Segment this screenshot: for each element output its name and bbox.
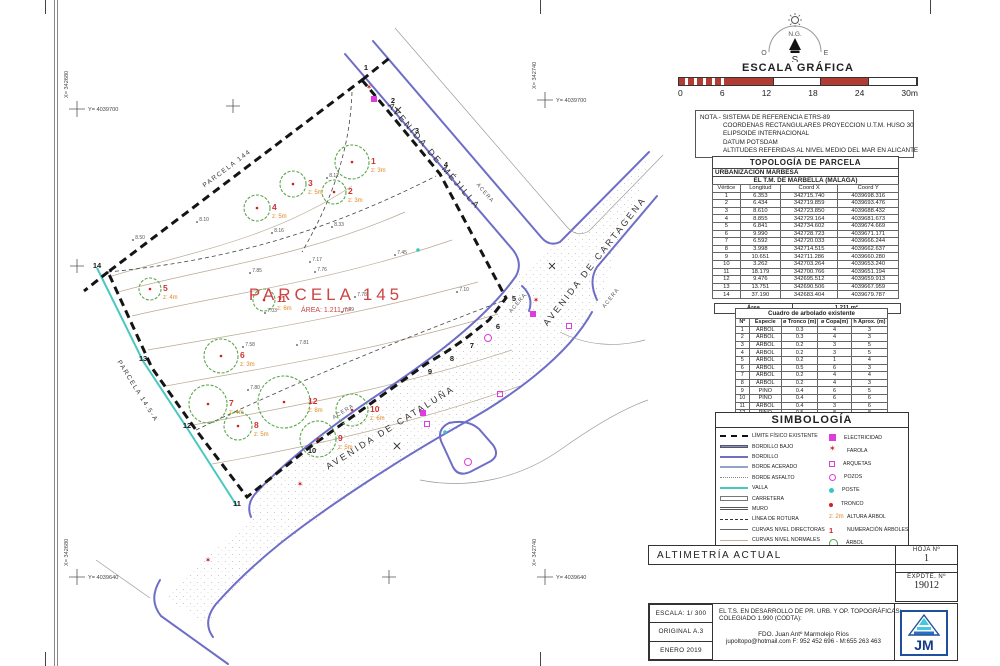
tree-height-label: z: 3m [240,362,255,368]
sheet-number-cell: HOJA Nº 1 [895,545,958,573]
table-row: 11 18.179 342700.766 4039651.194 [713,268,899,276]
vertex-number: 1 [364,63,368,72]
svg-text:Y= 4039640: Y= 4039640 [88,575,118,581]
tree-height-label: z: 5m [272,214,287,220]
legend-symbol [720,435,748,437]
tree-number: 5 [163,283,168,293]
legend-symbol [720,540,748,541]
legend-item: BORDE ACERADO [720,462,824,472]
grid-cross-label: Y= 4039640 X= 342680 [64,539,118,585]
scale-ticks: 0 6 12 18 24 30m [678,88,918,98]
tree-height-label: z: 3m [348,198,363,204]
legend-item: TRONCO [824,497,908,510]
date-cell: ENERO 2019 [649,641,713,660]
table-row: 10 3.262 342703.264 4039653.240 [713,260,899,268]
tree: 4 z: 5m [244,195,287,221]
grid-cross-label: Y= 4039700 X= 342680 [64,71,118,117]
legend-item: BORDILLO [720,452,824,462]
spot-elevation: 8.16 [271,228,284,234]
legend-right-column: ELECTRICIDAD FAROLA ARQUETAS POZOS POSTE… [824,431,908,556]
legend-item: ARQUETAS [824,457,908,470]
tree: 3 z: 5m [280,171,323,197]
survey-sheet: { "compass": {"north_label":"N.G.","west… [0,0,1000,666]
legend-item: z: 2m ALTURA ÁRBOL [824,510,908,523]
vertex-number: 9 [428,367,432,376]
plan-label: AVENIDA DE MÉJILLA [386,101,483,212]
table-row: 5 ÁRBOL 0.2 1 4 [736,356,888,364]
tree: 5 z: 4m [139,278,178,301]
table-row: 3 ÁRBOL 0.2 3 5 [736,341,888,349]
legend-title: SIMBOLOGÍA [716,413,908,428]
vertex-number: 8 [450,354,454,363]
spot-elevation: 8.50 [132,235,145,241]
compass-rose: N.G. O E S [758,8,832,64]
legend-symbol [720,507,748,510]
file-number-cell: EXPDTE. Nº 19012 [895,572,958,602]
electricidad-icon [530,311,536,317]
tree-height-label: z: 6m [277,306,292,312]
electricidad-icon [371,96,377,102]
table-row: 5 6.841 342734.602 4039674.669 [713,222,899,230]
jm-logo-icon: JM [902,612,946,654]
legend-symbol [829,461,835,467]
legend-symbol [720,456,748,459]
svg-text:8.16: 8.16 [274,228,284,234]
grid-cross [70,259,84,273]
table-row: 3 8.610 342723.850 4039688.432 [713,207,899,215]
table-row: 2 6.434 342719.859 4039693.476 [713,200,899,208]
farola-icon: ✶ [205,556,211,565]
tree-height-label: z: 5m [308,190,323,196]
farola-icon: ✶ [297,480,303,489]
table-row: 8 ÁRBOL 0.2 4 3 [736,379,888,387]
plan-label: PARCELA 14.5-A [115,359,159,423]
svg-text:N.G.: N.G. [788,31,802,38]
svg-text:E: E [824,50,829,57]
legend-item: LÍMITE FÍSICO EXISTENTE [720,431,824,441]
legend-symbol [720,529,748,530]
grid-crosses [70,99,396,584]
legend: SIMBOLOGÍA LÍMITE FÍSICO EXISTENTE BORDI… [715,412,909,555]
tree-number: 4 [272,202,277,212]
svg-text:Y= 4039700: Y= 4039700 [88,107,118,113]
spot-elevation: 7.80 [247,385,260,391]
tree: 1 z: 3m [335,145,386,179]
table-row: 9 10.651 342711.286 4039660.280 [713,253,899,261]
tree-number: 12 [308,396,318,406]
table-row: 12 9.476 342695.512 4039659.913 [713,276,899,284]
legend-left-column: LÍMITE FÍSICO EXISTENTE BORDILLO BAJO BO… [720,431,824,556]
table-row: 9 PINO 0.4 6 5 [736,387,888,395]
tree-trunk-dot [149,288,152,291]
svg-text:Y= 4039700: Y= 4039700 [556,98,586,104]
tree-number: 1 [371,156,376,166]
legend-symbol [829,488,834,493]
tree-number: 10 [370,404,380,414]
vertex-number: 7 [470,341,474,350]
pozo-icon [465,459,472,466]
tree-number: 7 [229,398,234,408]
spot-elevation: 7.10 [456,287,469,293]
spot-elevation: 7.85 [249,268,262,274]
tree-trunk-dot [237,425,240,428]
table-row: 8 3.998 342714.515 4039662.637 [713,245,899,253]
svg-text:✶: ✶ [205,556,211,565]
legend-symbol [720,477,748,478]
legend-symbol [720,445,748,448]
table-row: 4 ÁRBOL 0.2 3 5 [736,349,888,357]
parcel-area-label: ÁREA: 1.211 m² [301,305,352,314]
vertex-number: 12 [183,421,191,430]
grid-cross [382,570,396,584]
title-block: HOJA Nº 1 EXPDTE. Nº 19012 ALTIMETRÍA AC… [648,545,958,661]
svg-text:X= 342680: X= 342680 [64,71,70,98]
legend-item: ELECTRICIDAD [824,431,908,444]
table-row: 7 6.592 342720.033 4039666.244 [713,238,899,246]
poste-icon [416,248,420,252]
svg-text:X= 342680: X= 342680 [64,539,70,566]
table-row: 4 8.855 342729.164 4039681.673 [713,215,899,223]
svg-text:X= 342740: X= 342740 [532,62,538,89]
svg-text:7.17: 7.17 [312,257,322,263]
svg-text:X= 342740: X= 342740 [532,539,538,566]
legend-item: CARRETERA [720,493,824,503]
spot-elevation: 7.17 [309,257,322,263]
tree-number: 6 [240,350,245,360]
svg-text:7.80: 7.80 [250,385,260,391]
road-surface [165,158,650,628]
legend-item: CURVAS NIVEL DIRECTORAS [720,525,824,535]
svg-text:8.50: 8.50 [135,235,145,241]
legend-item: BORDILLO BAJO [720,441,824,451]
svg-text:8.33: 8.33 [334,222,344,228]
svg-text:7.45: 7.45 [397,250,407,256]
legend-item: FAROLA [824,444,908,457]
poste-icon [443,430,447,434]
spot-elevations: 7.85 7.76 7.03 7.59 7.78 8.12 8.33 8.16 … [132,173,469,391]
tree-trunk-dot [351,161,354,164]
table-row: 1 6.353 342715.740 4039698.316 [713,192,899,200]
svg-text:7.03: 7.03 [267,308,277,314]
tree-trunk-dot [220,355,223,358]
vertex-number: 10 [308,446,316,455]
svg-text:✶: ✶ [533,296,539,305]
legend-item: POZOS [824,471,908,484]
plan-label: ACERA [601,287,620,310]
svg-text:JM: JM [914,637,933,653]
tree-number: 2 [348,186,353,196]
svg-text:7.81: 7.81 [299,340,309,346]
spot-elevation: 7.81 [296,340,309,346]
legend-item: CURVAS NIVEL NORMALES [720,535,824,545]
tree-height-label: z: 6m [370,416,385,422]
spot-elevation: 8.12 [326,173,339,179]
svg-text:7.10: 7.10 [459,287,469,293]
tree-height-label: z: 4m [163,295,178,301]
spot-elevation: 7.58 [242,342,255,348]
legend-symbol [720,487,748,489]
vertex-number: 6 [496,322,500,331]
graphic-scale: ESCALA GRÁFICA 0 6 12 18 24 30m [678,62,918,98]
grid-cross-label: Y= 4039640 X= 342740 [532,539,586,585]
parcel-title: PARCELA 145 [249,285,403,304]
legend-item: LÍNEA DE ROTURA [720,514,824,524]
topology-title: TOPOLOGÍA DE PARCELA [712,156,899,168]
trees-table: Cuadro de arbolado existente Nº Especie … [735,308,888,418]
tree-height-label: z: 8m [308,408,323,414]
svg-text:8.10: 8.10 [199,217,209,223]
tree: 12 z: 8m [258,376,323,428]
legend-symbol [829,474,836,481]
tree-number: 9 [338,433,343,443]
table-row: 6 ÁRBOL 0.5 6 3 [736,364,888,372]
spot-elevation: 7.45 [394,250,407,256]
legend-symbol [720,496,748,501]
legend-symbol [829,434,836,441]
table-row: 1 ÁRBOL 0.3 4 3 [736,326,888,334]
legend-symbol [829,503,833,507]
tree-number: 8 [254,420,259,430]
reference-note: NOTA.- SISTEMA DE REFERENCIA ETRS-89 COO… [695,110,914,158]
surveyor-info: EL T.S. EN DESARROLLO DE PR. URB. Y OP. … [713,604,895,660]
table-row: 11 ÁRBOL 0.4 3 6 [736,402,888,410]
legend-symbol [720,519,748,520]
tree-trunk-dot [283,401,286,404]
svg-text:O: O [761,50,767,57]
trees-table-title: Cuadro de arbolado existente [735,308,888,318]
table-row: 2 ÁRBOL 0.3 4 3 [736,334,888,342]
legend-item: 1 NUMERACIÓN ÁRBOLES [824,523,908,536]
svg-text:7.76: 7.76 [317,267,327,273]
legend-item: VALLA [720,483,824,493]
tree-trunk-dot [256,207,259,210]
tree-height-label: z: 5m [254,432,269,438]
grid-cross [226,99,240,113]
scale-bar [678,77,918,86]
tree-trunk-dot [292,183,295,186]
scale-cell: ESCALA: 1/ 300 [649,604,713,623]
table-row: 13 13.751 342690.506 4039667.959 [713,283,899,291]
table-row: 10 PINO 0.4 6 6 [736,394,888,402]
vertex-number: 11 [233,499,241,508]
vertex-number: 14 [93,261,102,270]
grid-cross-label: Y= 4039700 X= 342740 [532,62,586,108]
svg-text:7.85: 7.85 [252,268,262,274]
table-row: 14 37.190 342683.404 4039679.787 [713,291,899,299]
spot-elevation: 7.76 [314,267,327,273]
svg-text:✶: ✶ [297,480,303,489]
legend-symbol [829,447,839,455]
table-row: 7 ÁRBOL 0.2 4 4 [736,372,888,380]
legend-symbol [720,466,748,468]
vertex-number: 13 [139,354,147,363]
legend-item: POSTE [824,484,908,497]
farola-icon: ✶ [366,83,372,92]
farola-icon: ✶ [533,296,539,305]
spot-elevation: 8.33 [331,222,344,228]
company-logo: JM [900,610,948,656]
scale-title: ESCALA GRÁFICA [678,62,918,74]
svg-text:7.58: 7.58 [245,342,255,348]
spot-elevation: 8.10 [196,217,209,223]
svg-text:8.12: 8.12 [329,173,339,179]
legend-item: BORDE ASFALTO [720,473,824,483]
legend-symbol: 1 [829,526,839,534]
compass-icon: N.G. O E S [758,8,832,64]
original-size-cell: ORIGINAL A.3 [649,622,713,641]
legend-symbol: z: 2m [829,513,839,521]
table-row: 6 9.990 342728.723 4039671.171 [713,230,899,238]
tree-height-label: z: 3m [371,168,386,174]
coordinates-table: Vértice Longitud Coord X Coord Y 1 6.353… [712,184,899,299]
tree-number: 3 [308,178,313,188]
svg-text:Y= 4039640: Y= 4039640 [556,575,586,581]
tree-trunk-dot [317,438,320,441]
legend-item: MURO [720,504,824,514]
svg-text:✶: ✶ [366,83,372,92]
topology-table: TOPOLOGÍA DE PARCELA URBANIZACIÓN MARBES… [712,156,899,314]
tree-trunk-dot [333,191,336,194]
tree-trunk-dot [207,403,210,406]
